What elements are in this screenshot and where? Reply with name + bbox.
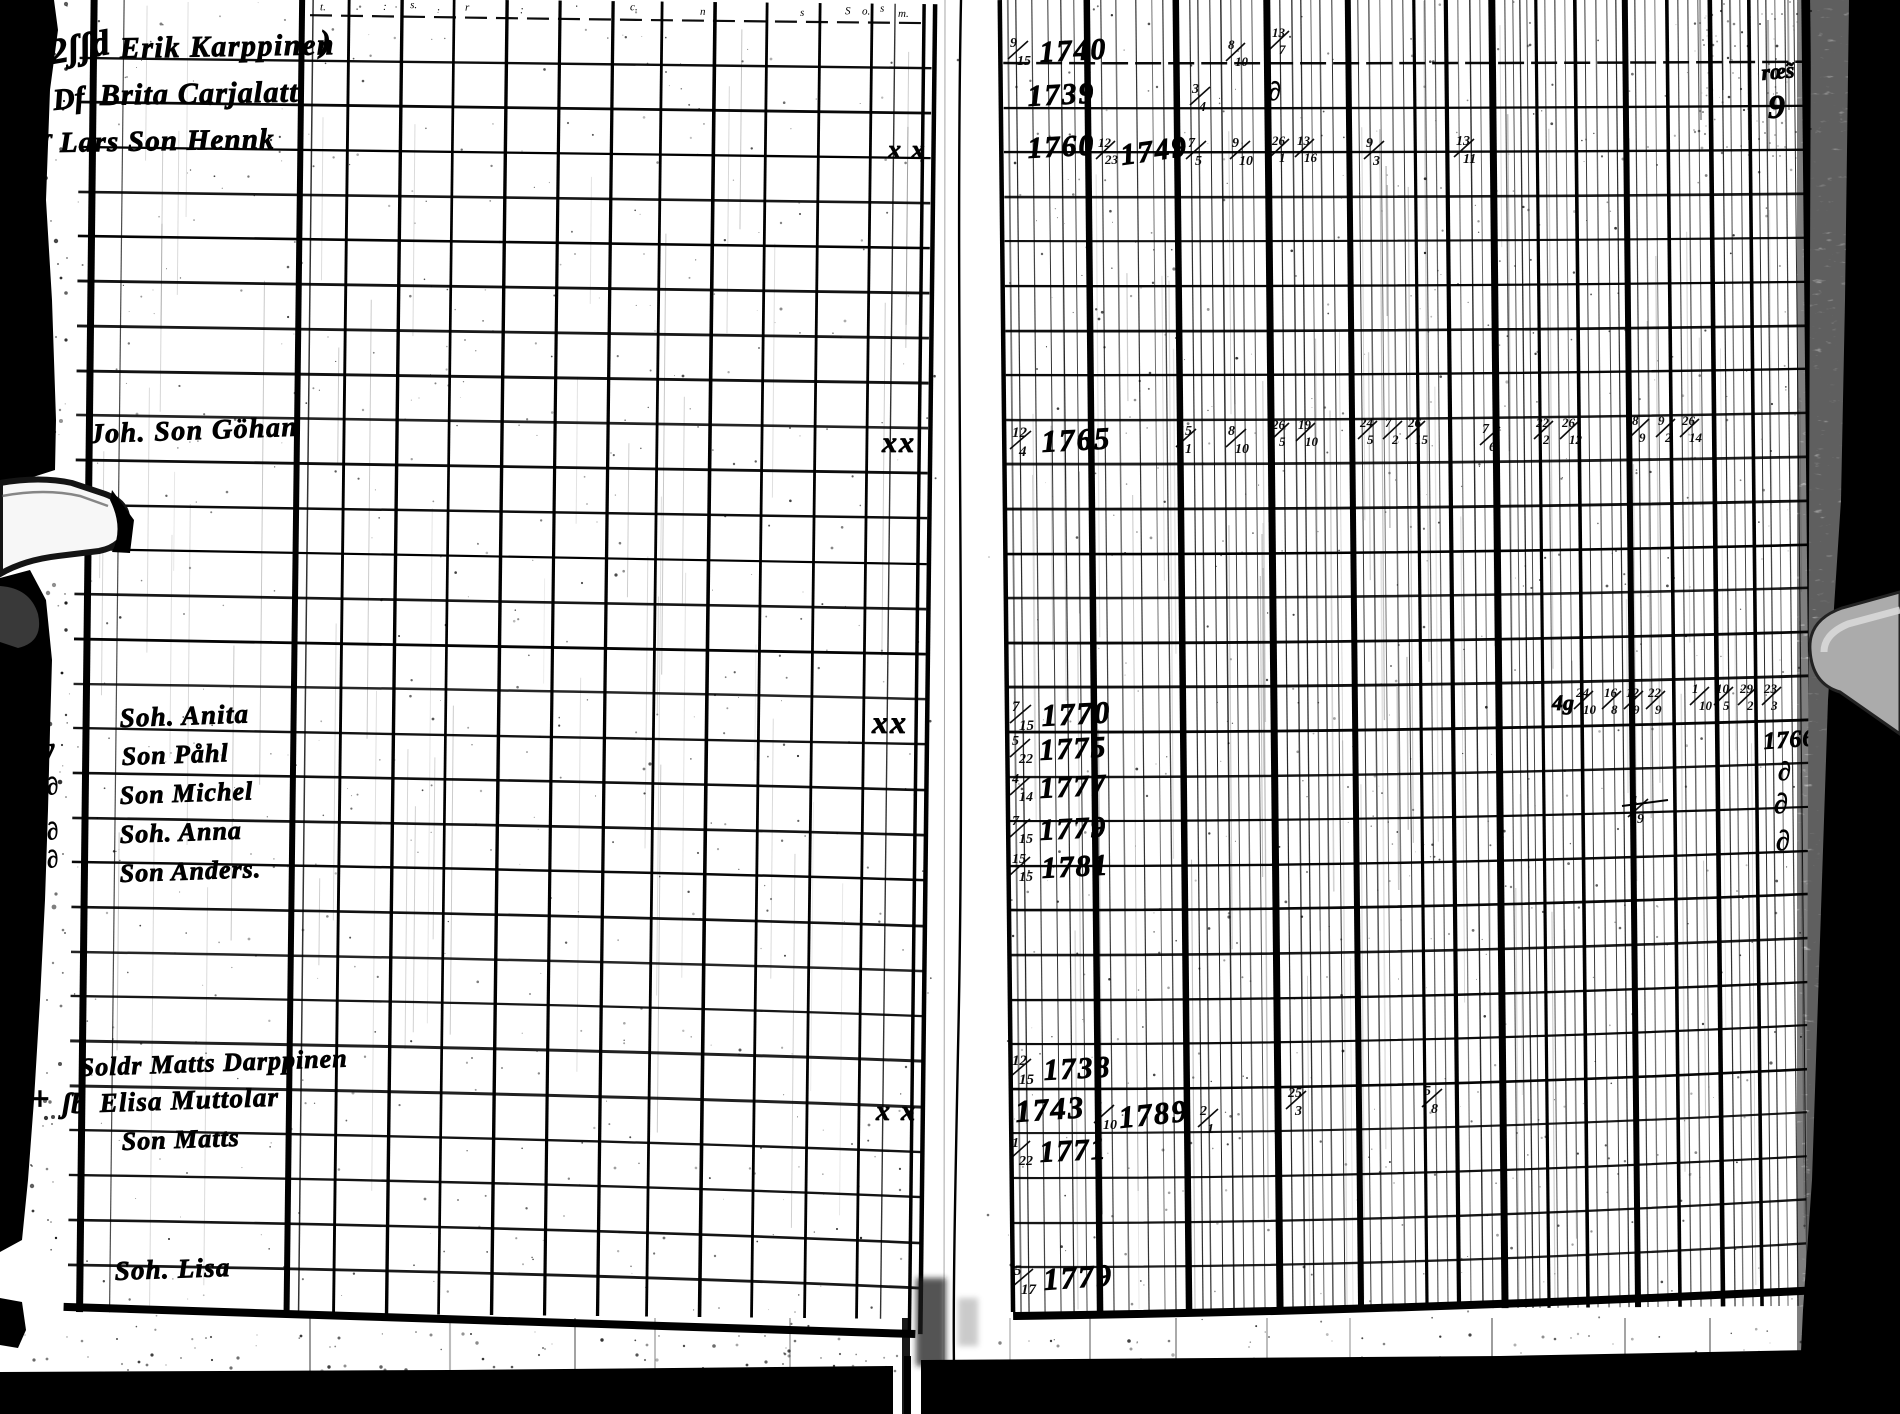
svg-text:1789: 1789 bbox=[1117, 1093, 1190, 1135]
svg-text:·: · bbox=[437, 4, 440, 16]
svg-text:2: 2 bbox=[1199, 1104, 1207, 1119]
svg-text:26: 26 bbox=[1271, 417, 1286, 432]
svg-text:3: 3 bbox=[1770, 698, 1778, 713]
svg-text:26: 26 bbox=[1561, 415, 1576, 430]
svg-text:5: 5 bbox=[1723, 698, 1730, 713]
svg-text:10: 10 bbox=[1103, 1118, 1117, 1133]
svg-text:29: 29 bbox=[1739, 681, 1754, 696]
svg-text:ʃb: ʃb bbox=[58, 1089, 85, 1120]
svg-text:1738: 1738 bbox=[1043, 1050, 1113, 1087]
svg-text:9: 9 bbox=[1010, 36, 1017, 51]
svg-text:13: 13 bbox=[1297, 133, 1311, 148]
svg-text:12: 12 bbox=[1626, 685, 1640, 700]
svg-text:13: 13 bbox=[1272, 25, 1286, 40]
svg-text:4: 4 bbox=[1018, 444, 1027, 460]
svg-text:9: 9 bbox=[1366, 136, 1373, 151]
svg-text:7: 7 bbox=[1385, 415, 1392, 430]
svg-text:c.: c. bbox=[630, 1, 638, 13]
svg-text:9: 9 bbox=[1232, 136, 1239, 151]
svg-text:15: 15 bbox=[1178, 424, 1192, 439]
svg-text:15: 15 bbox=[1019, 832, 1033, 847]
svg-text:1: 1 bbox=[1692, 681, 1699, 696]
svg-text:Brita Carjalatt: Brita Carjalatt bbox=[99, 76, 300, 112]
svg-text:22: 22 bbox=[1647, 685, 1662, 700]
svg-text:14: 14 bbox=[1689, 430, 1703, 445]
svg-text:23: 23 bbox=[1763, 681, 1778, 696]
svg-text:9: 9 bbox=[1639, 430, 1646, 445]
svg-text:2: 2 bbox=[1664, 430, 1672, 445]
svg-text:16: 16 bbox=[1304, 150, 1318, 165]
svg-text:1765: 1765 bbox=[1041, 420, 1113, 459]
svg-text:Soh. Anna: Soh. Anna bbox=[119, 816, 242, 849]
svg-text:7: 7 bbox=[1012, 814, 1020, 829]
svg-text:∂: ∂ bbox=[1774, 789, 1788, 820]
svg-text:1743: 1743 bbox=[1014, 1089, 1086, 1129]
svg-text:25: 25 bbox=[1287, 1086, 1302, 1101]
svg-text:3: 3 bbox=[1372, 154, 1380, 169]
svg-text:14: 14 bbox=[1019, 790, 1033, 805]
svg-text:15: 15 bbox=[1019, 1072, 1035, 1088]
svg-text:o.: o. bbox=[862, 5, 870, 17]
svg-text:Erik Karppinen: Erik Karppinen bbox=[119, 28, 336, 65]
svg-text:15: 15 bbox=[1415, 432, 1429, 447]
svg-text::: : bbox=[520, 4, 524, 16]
svg-text:10: 10 bbox=[1239, 154, 1253, 169]
svg-text:9: 9 bbox=[1637, 812, 1644, 827]
svg-text:10: 10 bbox=[1305, 434, 1319, 449]
svg-text:1781: 1781 bbox=[1041, 848, 1111, 885]
svg-text:7: 7 bbox=[1188, 136, 1196, 151]
svg-text:7: 7 bbox=[1012, 699, 1020, 715]
svg-text:1: 1 bbox=[1207, 1122, 1214, 1137]
svg-text:10: 10 bbox=[1716, 681, 1730, 696]
svg-text:7: 7 bbox=[1279, 42, 1286, 57]
svg-text:12: 12 bbox=[1098, 135, 1112, 150]
svg-text:Lars Son Hennk: Lars Son Hennk bbox=[59, 123, 276, 159]
svg-text:xx: xx bbox=[881, 426, 916, 459]
svg-text:10: 10 bbox=[1699, 698, 1713, 713]
svg-text:15: 15 bbox=[1012, 852, 1026, 867]
svg-text:1777: 1777 bbox=[1039, 768, 1109, 805]
svg-text:9: 9 bbox=[1655, 702, 1662, 717]
svg-text:8: 8 bbox=[1228, 37, 1235, 52]
svg-text:5: 5 bbox=[1012, 734, 1019, 749]
svg-text:12: 12 bbox=[1012, 425, 1028, 441]
svg-text:x x: x x bbox=[875, 1096, 917, 1127]
svg-text:22: 22 bbox=[1018, 1154, 1033, 1169]
svg-text:17: 17 bbox=[1021, 1282, 1037, 1298]
svg-text:16: 16 bbox=[1604, 685, 1618, 700]
svg-text:26: 26 bbox=[1407, 415, 1422, 430]
svg-text:5: 5 bbox=[1014, 1263, 1022, 1279]
svg-text:11: 11 bbox=[1463, 152, 1476, 167]
svg-text:13: 13 bbox=[1456, 134, 1470, 149]
svg-text:1779: 1779 bbox=[1042, 1257, 1114, 1297]
svg-text:8: 8 bbox=[1431, 1102, 1438, 1117]
svg-text:8: 8 bbox=[1228, 424, 1235, 439]
svg-text:10: 10 bbox=[1235, 442, 1249, 457]
svg-text:6: 6 bbox=[1489, 440, 1496, 455]
svg-text:1771: 1771 bbox=[1039, 1132, 1109, 1169]
svg-text:3: 3 bbox=[1191, 82, 1199, 97]
svg-text:s: s bbox=[800, 7, 804, 19]
svg-text:1740: 1740 bbox=[1039, 32, 1109, 69]
svg-text:Son Påhl: Son Påhl bbox=[121, 738, 229, 771]
svg-text:15: 15 bbox=[1019, 870, 1033, 885]
svg-text:1770: 1770 bbox=[1041, 694, 1113, 733]
svg-text:4: 4 bbox=[1011, 772, 1019, 787]
svg-text:1739: 1739 bbox=[1027, 76, 1097, 113]
svg-text:1775: 1775 bbox=[1039, 730, 1109, 767]
svg-text:Soh. Anita: Soh. Anita bbox=[119, 698, 250, 733]
svg-text:15: 15 bbox=[1017, 54, 1031, 69]
svg-text:1: 1 bbox=[1012, 1136, 1019, 1151]
svg-text:19: 19 bbox=[1298, 417, 1312, 432]
svg-text:s: s bbox=[880, 3, 884, 15]
svg-text:2: 2 bbox=[1391, 432, 1399, 447]
svg-text:26: 26 bbox=[1271, 133, 1286, 148]
svg-text:3: 3 bbox=[1294, 1104, 1302, 1119]
svg-text:9: 9 bbox=[1768, 89, 1785, 126]
svg-text:8: 8 bbox=[1632, 413, 1639, 428]
svg-text:5: 5 bbox=[1367, 432, 1374, 447]
svg-text:2: 2 bbox=[1746, 698, 1754, 713]
svg-text:9: 9 bbox=[1658, 413, 1665, 428]
svg-text:2: 2 bbox=[1542, 432, 1550, 447]
svg-text:5: 5 bbox=[1424, 1084, 1431, 1099]
svg-text:9: 9 bbox=[1633, 702, 1640, 717]
svg-text:Son Michel: Son Michel bbox=[119, 776, 253, 810]
svg-text:Son Matts: Son Matts bbox=[121, 1123, 240, 1156]
svg-text:∂: ∂ bbox=[1268, 77, 1281, 106]
svg-text:t.: t. bbox=[320, 1, 326, 13]
svg-text:10: 10 bbox=[1235, 54, 1249, 69]
svg-text:24: 24 bbox=[1575, 685, 1590, 700]
svg-text:24: 24 bbox=[1359, 415, 1374, 430]
svg-text:1760: 1760 bbox=[1027, 128, 1097, 165]
svg-text:S: S bbox=[845, 5, 851, 17]
svg-text:12: 12 bbox=[1012, 1053, 1028, 1069]
svg-text:∂: ∂ bbox=[1778, 757, 1791, 786]
svg-text:Soh. Lisa: Soh. Lisa bbox=[114, 1252, 231, 1286]
svg-text:s.: s. bbox=[410, 0, 417, 11]
svg-text:n: n bbox=[700, 6, 706, 18]
svg-text:1: 1 bbox=[1279, 150, 1286, 165]
svg-text:22: 22 bbox=[1018, 752, 1033, 767]
svg-text:Son Anders.: Son Anders. bbox=[119, 854, 261, 888]
svg-text:4: 4 bbox=[1629, 794, 1637, 809]
svg-text:4: 4 bbox=[1198, 100, 1206, 115]
svg-text:1: 1 bbox=[1096, 1100, 1103, 1115]
svg-text:4g: 4g bbox=[1551, 690, 1574, 715]
svg-text:1: 1 bbox=[1185, 442, 1192, 457]
svg-text:15: 15 bbox=[1019, 718, 1035, 734]
svg-text::: : bbox=[383, 1, 387, 13]
svg-text:∂: ∂ bbox=[1776, 826, 1790, 857]
svg-text:1779: 1779 bbox=[1039, 810, 1109, 847]
svg-text:26: 26 bbox=[1681, 413, 1696, 428]
svg-text:): ) bbox=[317, 23, 331, 59]
svg-text:22: 22 bbox=[1535, 415, 1550, 430]
svg-text:m.: m. bbox=[898, 8, 909, 20]
svg-text:8: 8 bbox=[1611, 702, 1618, 717]
svg-text:xx: xx bbox=[871, 704, 908, 740]
svg-text:5: 5 bbox=[1195, 154, 1202, 169]
svg-text:5: 5 bbox=[1279, 434, 1286, 449]
svg-text:12: 12 bbox=[1569, 432, 1583, 447]
svg-text:10: 10 bbox=[1583, 702, 1597, 717]
svg-text:Elisa Muttolar: Elisa Muttolar bbox=[98, 1082, 280, 1118]
svg-text:.: . bbox=[356, 1, 359, 13]
svg-text:7: 7 bbox=[1482, 422, 1490, 437]
svg-text:23: 23 bbox=[1104, 152, 1119, 167]
svg-text:rœ̃s: rœ̃s bbox=[1760, 57, 1796, 85]
svg-text:·: · bbox=[575, 1, 578, 13]
svg-text:x x: x x bbox=[887, 135, 927, 164]
